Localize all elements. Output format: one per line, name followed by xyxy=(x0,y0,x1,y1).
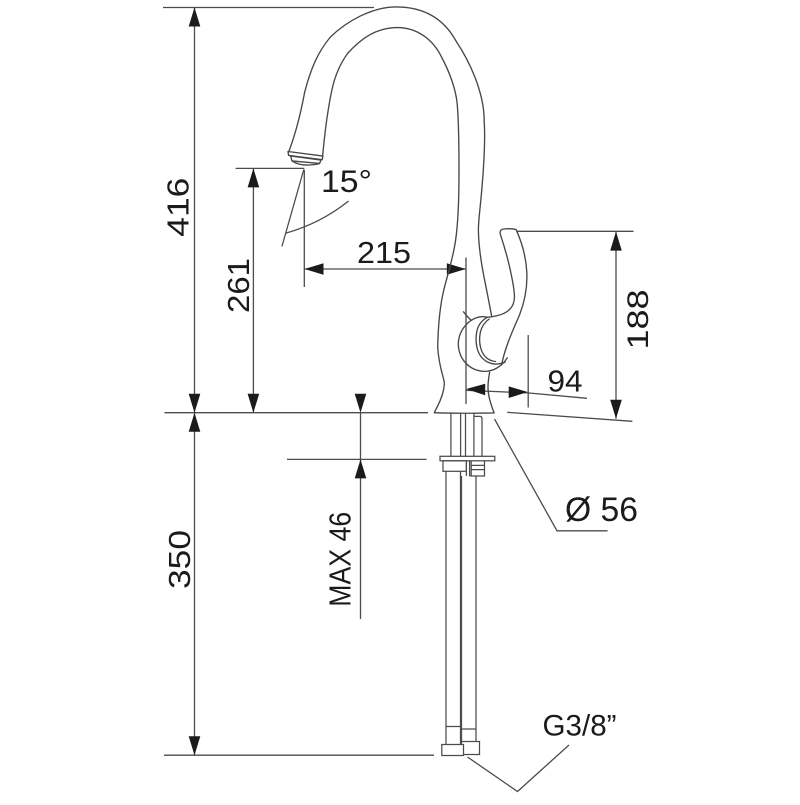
svg-text:188: 188 xyxy=(622,290,655,350)
svg-text:G3/8”: G3/8” xyxy=(543,710,617,743)
svg-text:215: 215 xyxy=(357,235,411,270)
svg-text:15°: 15° xyxy=(321,163,372,199)
svg-text:MAX 46: MAX 46 xyxy=(323,512,358,607)
svg-text:416: 416 xyxy=(160,178,195,237)
svg-text:Ø 56: Ø 56 xyxy=(565,491,638,529)
svg-text:350: 350 xyxy=(162,530,197,589)
svg-text:261: 261 xyxy=(221,258,256,313)
svg-text:94: 94 xyxy=(548,364,583,399)
